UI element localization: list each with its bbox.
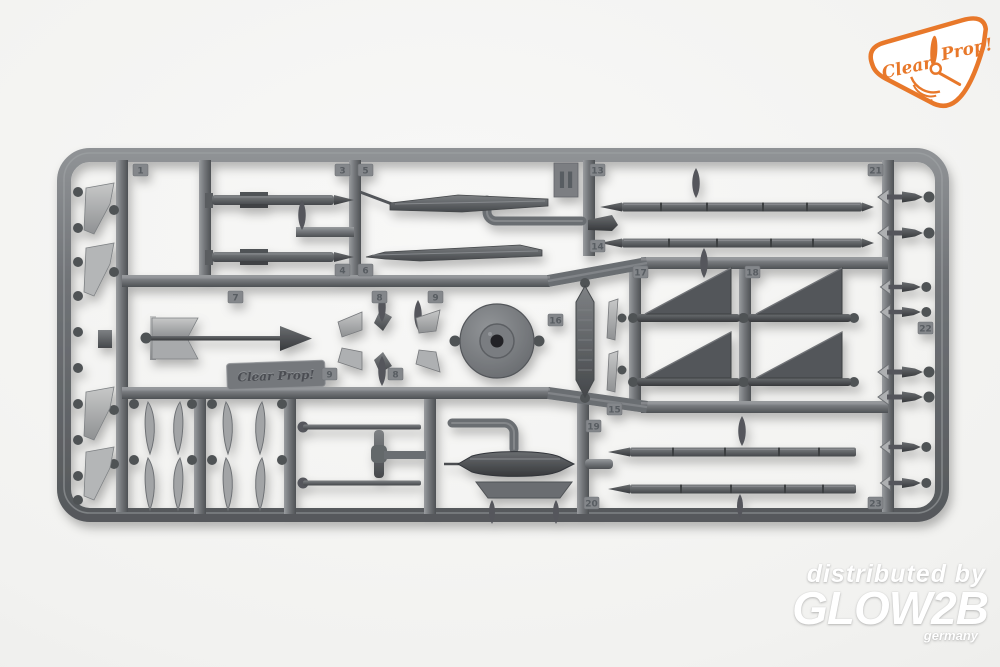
missile-part	[600, 203, 874, 212]
brand-logo: Clear Prop!	[869, 17, 997, 109]
watermark: distributed by GLOW2B germany	[792, 560, 988, 643]
part-number-tab: 7	[232, 294, 238, 304]
part-number-tab: 19	[587, 423, 600, 433]
connector-drop	[738, 416, 746, 446]
missile-part	[205, 249, 354, 265]
disc-part	[460, 304, 534, 378]
part-number-tab: 9	[432, 294, 438, 304]
part-number-tab: 1	[137, 167, 143, 177]
part-number-tab: 22	[919, 325, 932, 335]
connector-drop	[692, 168, 700, 198]
wing-pylon-part	[366, 245, 542, 261]
part-number-tab: 15	[608, 406, 621, 416]
brand-nameplate: Clear Prop! Clear Prop!	[227, 360, 326, 389]
part-number-tab: 17	[634, 269, 647, 279]
part-number-tab: 9	[326, 371, 332, 381]
sprue-id-tab: II	[554, 163, 578, 197]
product-photo: II	[0, 0, 1000, 667]
rod-parts	[298, 422, 427, 489]
svg-text:Clear Prop!: Clear Prop!	[237, 368, 314, 385]
pylon-parts-left	[84, 183, 114, 500]
part-number-tab: 16	[549, 317, 562, 327]
missile-part	[600, 239, 874, 248]
part-number-tab: 20	[585, 500, 598, 510]
delta-missile-part	[739, 332, 859, 387]
missile-part	[205, 192, 354, 208]
part-number-tab: 13	[591, 167, 604, 177]
delta-missile-part	[628, 332, 748, 387]
part-number-tab: 6	[362, 267, 368, 277]
part-number-tab: 8	[392, 371, 398, 381]
part-number-tab: 8	[376, 294, 382, 304]
part-number-tab: 14	[591, 243, 604, 253]
small-blade-parts	[607, 299, 627, 392]
arrow-missile-part	[141, 316, 313, 360]
missile-part	[608, 485, 856, 494]
missile-part	[608, 448, 856, 457]
watermark-brand: GLOW2B	[792, 589, 988, 628]
part-number-tab: 23	[869, 500, 882, 510]
finned-tank-part	[576, 286, 594, 397]
wing-pylon-part	[360, 192, 548, 212]
part-number-tab: 21	[869, 167, 882, 177]
part-number-tab: 3	[339, 167, 345, 177]
svg-text:II: II	[558, 169, 574, 194]
part-number-tab: 18	[746, 269, 759, 279]
sprue-frame: II	[64, 153, 942, 524]
part-number-tab: 5	[362, 167, 368, 177]
part-number-tab: 4	[339, 267, 345, 277]
connector-drop	[700, 248, 708, 278]
